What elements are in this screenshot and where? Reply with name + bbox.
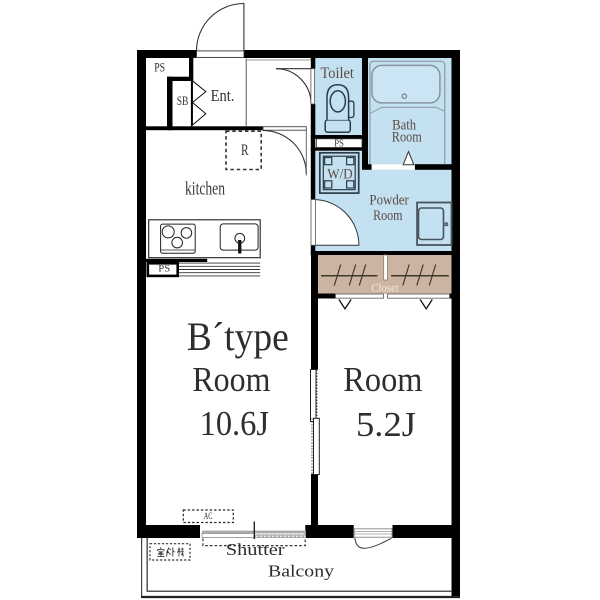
svg-text:5.2J: 5.2J: [356, 405, 416, 444]
svg-text:B´type: B´type: [187, 314, 289, 359]
svg-text:Powder: Powder: [369, 192, 408, 208]
svg-text:Balcony: Balcony: [268, 561, 335, 580]
svg-text:Room: Room: [192, 360, 270, 399]
svg-text:R: R: [241, 142, 249, 159]
svg-text:AC: AC: [204, 511, 213, 521]
svg-text:Ent.: Ent.: [211, 86, 235, 105]
svg-text:SB: SB: [177, 94, 189, 108]
svg-text:PS: PS: [158, 265, 170, 275]
svg-text:W/D: W/D: [327, 167, 352, 183]
svg-text:Shutter: Shutter: [226, 540, 285, 559]
svg-text:kitchen: kitchen: [185, 180, 225, 200]
svg-text:Room: Room: [343, 360, 422, 399]
svg-text:PS: PS: [154, 61, 165, 75]
svg-text:10.6J: 10.6J: [200, 404, 269, 443]
svg-text:Toilet: Toilet: [321, 65, 355, 82]
svg-text:PS: PS: [334, 139, 344, 150]
svg-text:Room: Room: [373, 208, 403, 224]
svg-text:Closet: Closet: [371, 282, 399, 294]
svg-text:Room: Room: [392, 129, 422, 145]
